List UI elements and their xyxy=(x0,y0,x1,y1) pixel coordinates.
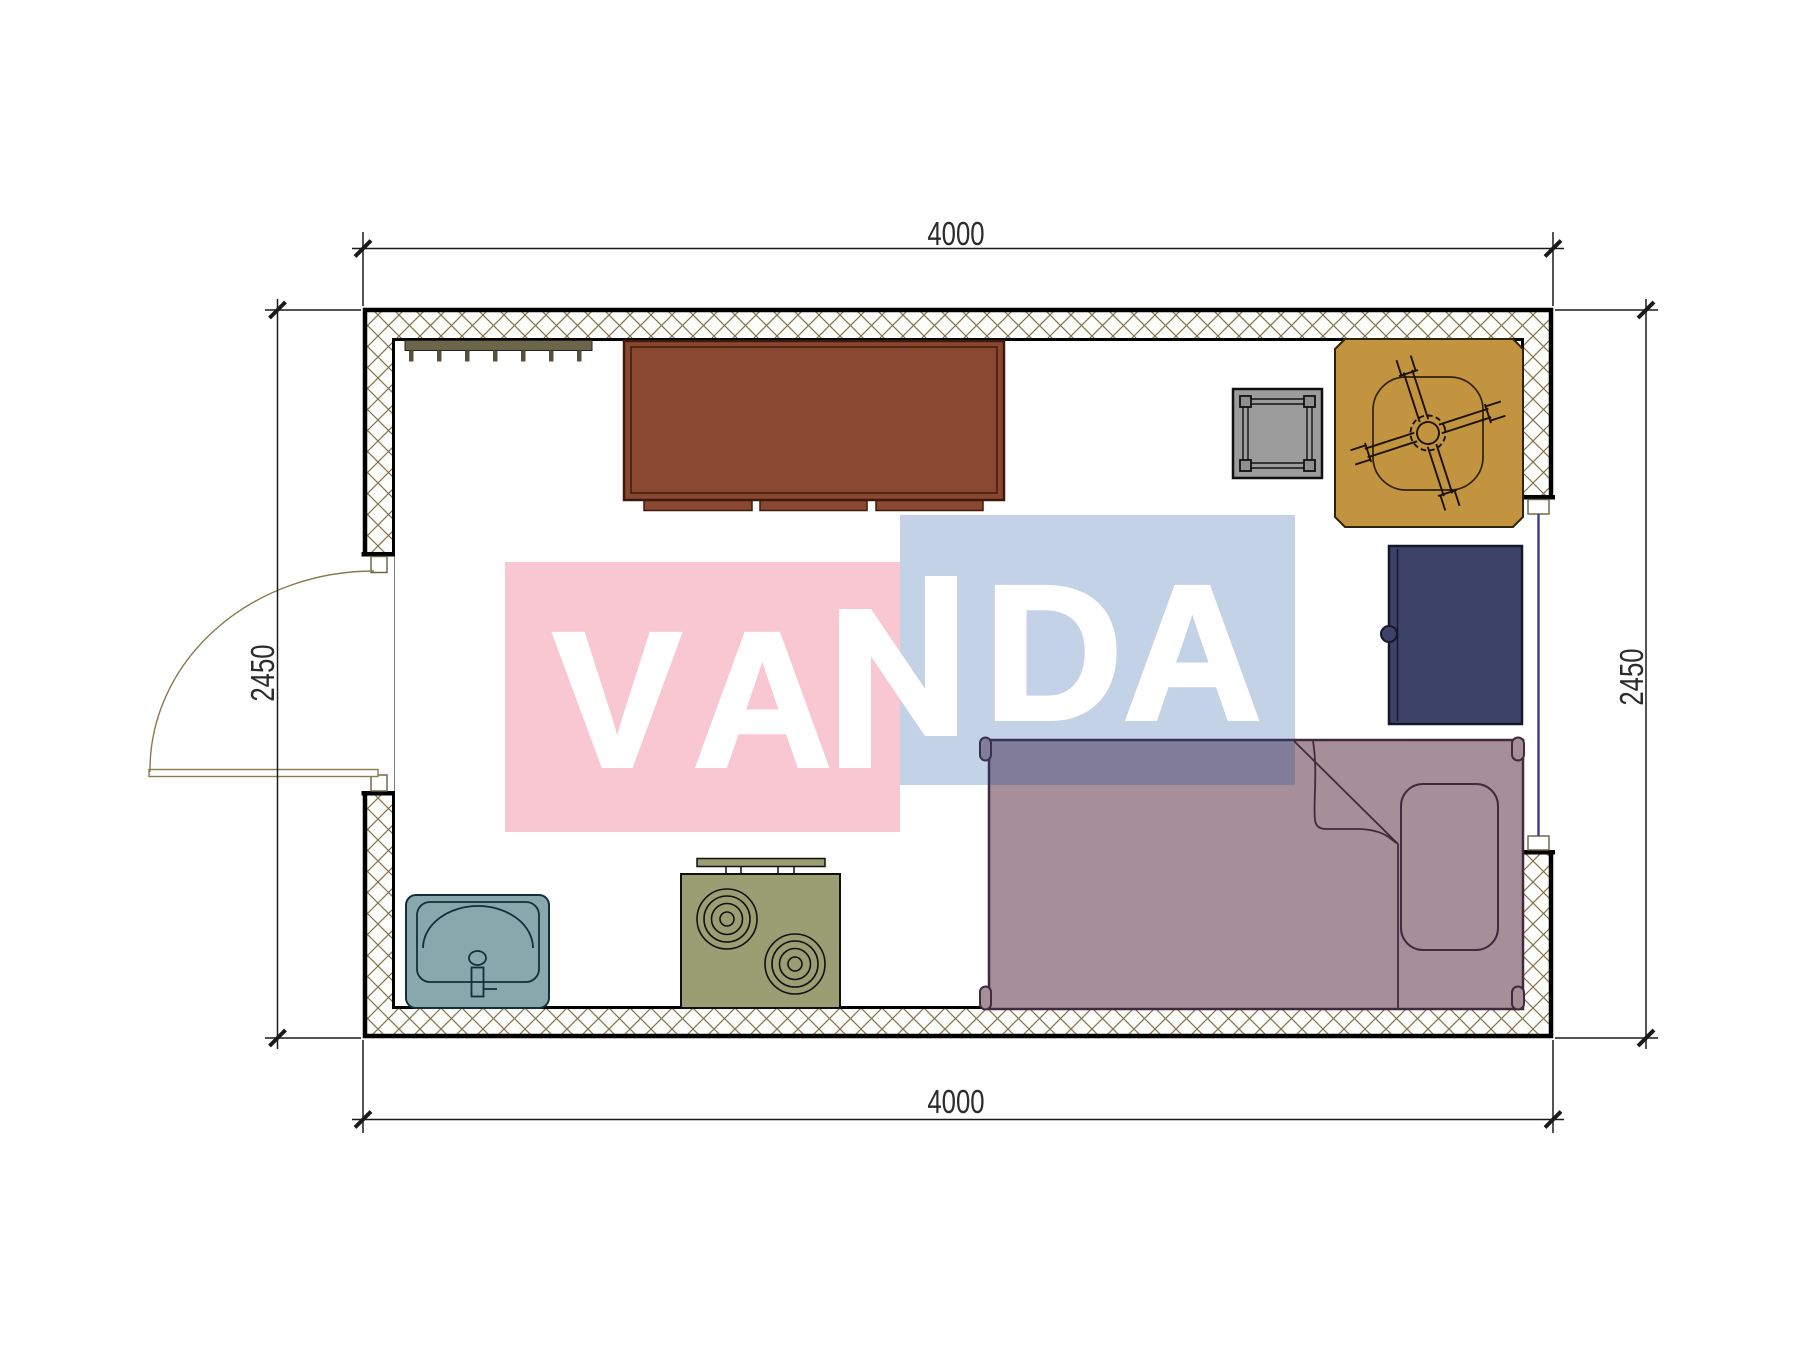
svg-text:D: D xyxy=(984,545,1123,760)
svg-text:A: A xyxy=(693,592,832,807)
svg-text:2450: 2450 xyxy=(1614,648,1651,705)
svg-text:4000: 4000 xyxy=(927,1084,984,1121)
svg-text:2450: 2450 xyxy=(245,644,282,701)
svg-text:V: V xyxy=(553,592,681,807)
svg-text:A: A xyxy=(1123,545,1262,760)
svg-text:4000: 4000 xyxy=(927,216,984,253)
